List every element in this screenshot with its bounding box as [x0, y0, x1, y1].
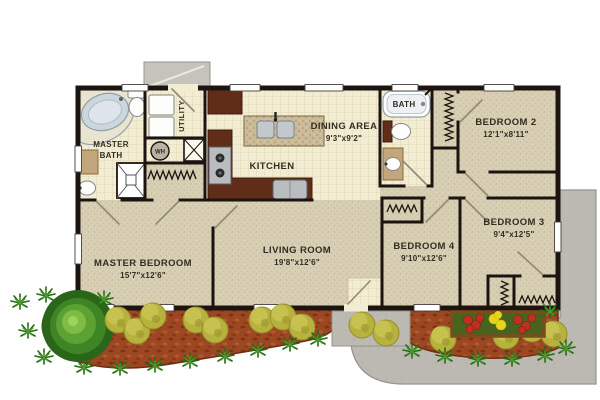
window	[122, 85, 148, 92]
water-heater-icon: WH	[151, 142, 169, 160]
living-room-label: LIVING ROOM	[263, 245, 331, 256]
living-room-dims: 19'8"x12'6"	[274, 258, 320, 267]
floor-plan-svg: WH	[0, 0, 600, 400]
master-bath-label-line1: MASTER	[93, 140, 129, 149]
entry-tile	[348, 278, 382, 308]
pantry-cabinet-icon	[184, 139, 204, 161]
bedroom4-label: BEDROOM 4	[393, 241, 454, 252]
front-door-gap	[344, 304, 368, 312]
window	[555, 222, 562, 252]
window	[230, 85, 260, 92]
bedroom3-dims: 9'4"x12'5"	[493, 230, 534, 239]
water-heater-label: WH	[155, 150, 165, 156]
bedroom2-dims: 12'1"x8'11"	[483, 130, 528, 139]
bedroom4-dims: 9'10"x12'6"	[401, 254, 447, 263]
bedroom3-label: BEDROOM 3	[483, 217, 544, 228]
master-bedroom-label: MASTER BEDROOM	[94, 258, 192, 269]
bedroom2-label: BEDROOM 2	[475, 117, 536, 128]
window	[75, 234, 82, 264]
dryer-icon	[149, 117, 174, 137]
pedestal-sink-icon	[78, 181, 95, 195]
window	[305, 85, 343, 92]
window	[75, 146, 82, 172]
master-bedroom-dims: 15'7"x12'6"	[120, 271, 166, 280]
upper-cabinet	[208, 90, 242, 114]
washer-icon	[149, 95, 174, 115]
window	[484, 85, 514, 92]
kitchen-label: KITCHEN	[249, 161, 294, 172]
hall-bath-label: BATH	[393, 100, 416, 109]
dining-label: DINING AREA	[311, 121, 378, 132]
vanity-sink-icon	[383, 148, 403, 180]
refrigerator-icon	[273, 180, 307, 199]
window	[392, 85, 418, 92]
utility-label: UTILITY	[177, 100, 186, 132]
master-bath-label-line2: BATH	[100, 151, 123, 160]
shower-icon	[117, 163, 145, 198]
stove-icon	[209, 147, 231, 184]
toilet-icon	[128, 90, 146, 117]
dining-dims: 9'3"x9'2"	[326, 134, 362, 143]
floor-plan-image: WH	[0, 0, 600, 400]
window	[414, 305, 440, 312]
planter-box	[452, 311, 544, 336]
